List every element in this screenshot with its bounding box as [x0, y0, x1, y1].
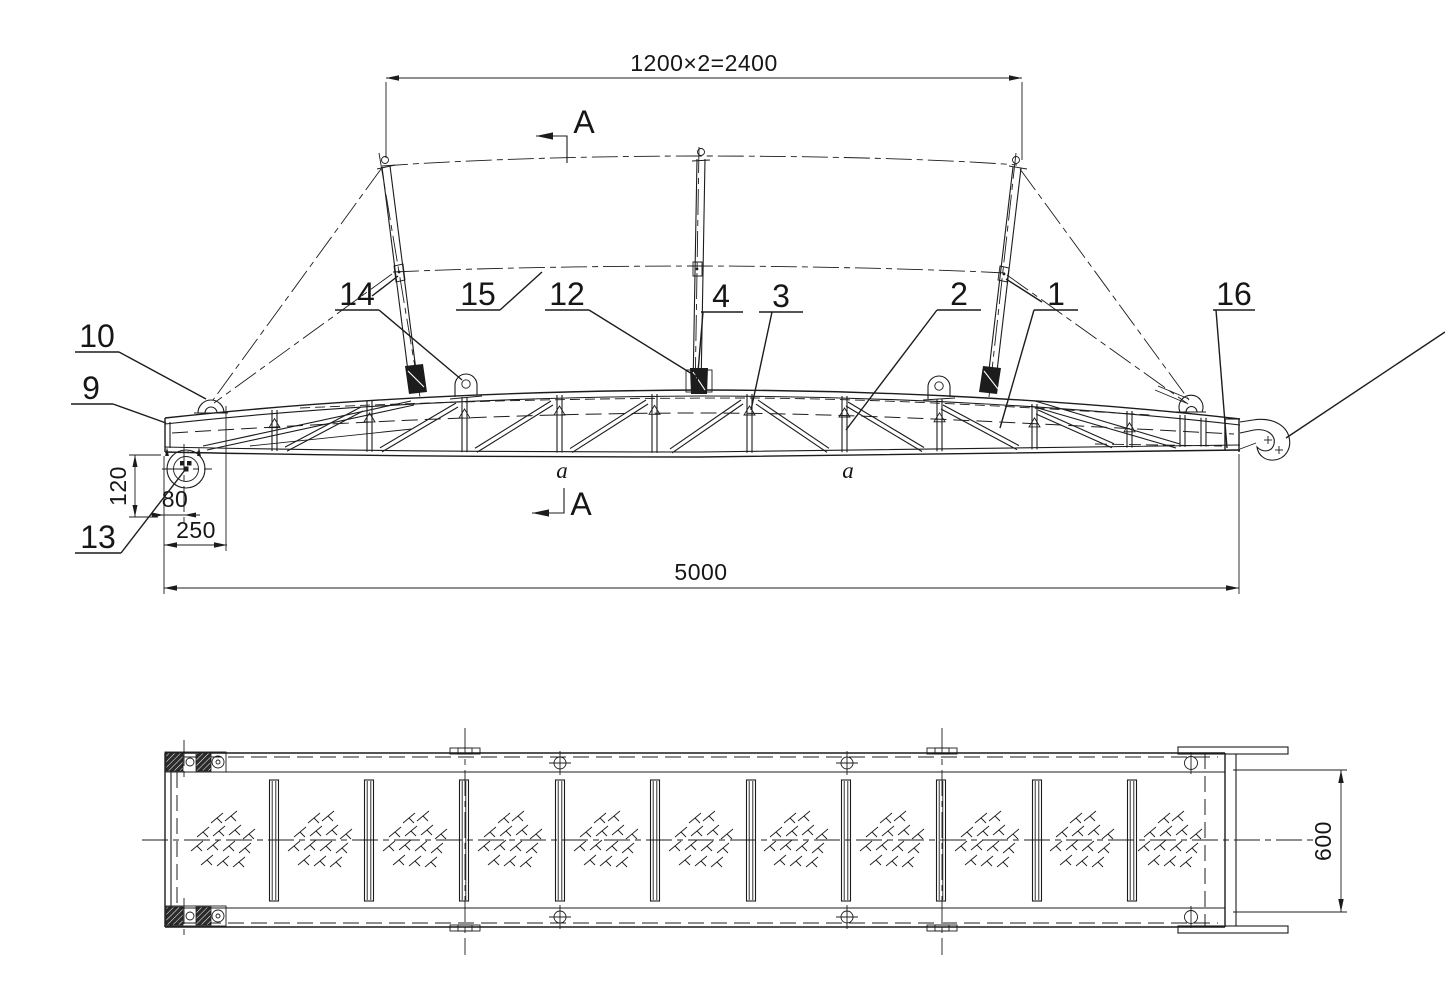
svg-text:15: 15 — [460, 276, 496, 312]
end-bolt-top — [1185, 752, 1198, 774]
stanchions — [377, 147, 1027, 398]
weld-mark-right: a — [842, 458, 854, 483]
dim-top-span: 1200×2=2400 — [630, 50, 778, 76]
plan-centerlines — [142, 728, 1318, 955]
side-dimensions: 1200×2=2400 5000 250 80 120 — [105, 50, 1239, 594]
drawing-canvas: 1200×2=2400 5000 250 80 120 A A — [0, 0, 1445, 1005]
hook-leader-line — [1286, 332, 1445, 438]
svg-text:14: 14 — [339, 276, 375, 312]
stanchion-left — [377, 153, 427, 397]
section-marker-top: A — [536, 104, 595, 163]
rope-anchor-lug-b — [923, 376, 955, 400]
svg-text:12: 12 — [549, 276, 585, 312]
part-label-15: 15 — [456, 272, 542, 312]
part-label-2: 2 — [846, 276, 981, 430]
shore-hook — [1240, 332, 1445, 460]
plan-stanchion-tabs — [450, 748, 957, 931]
truss-girder — [165, 390, 1240, 457]
svg-text:3: 3 — [772, 278, 790, 314]
side-elevation-view: 1200×2=2400 5000 250 80 120 A A — [71, 50, 1445, 594]
section-letter-bottom: A — [570, 486, 592, 522]
deck-slats-and-knurling — [191, 780, 1202, 901]
part-label-14: 14 — [335, 276, 462, 380]
roller-block-bottom — [165, 898, 226, 940]
part-label-12: 12 — [545, 276, 697, 377]
dim-width: 600 — [1310, 821, 1336, 861]
end-bolt-bottom — [1185, 906, 1198, 928]
svg-text:2: 2 — [950, 276, 968, 312]
dim-nose-length: 250 — [176, 517, 216, 543]
shackle-lug-left — [194, 400, 228, 413]
svg-text:1: 1 — [1047, 276, 1065, 312]
plan-dimension-width: 600 — [1233, 770, 1347, 912]
svg-text:10: 10 — [79, 318, 115, 354]
dimension-arrowheads — [132, 75, 1343, 912]
roller-block-top — [165, 740, 226, 782]
dim-roller-drop: 120 — [105, 466, 131, 506]
shackle-lug-right — [1176, 395, 1206, 412]
gangway-technical-drawing: 1200×2=2400 5000 250 80 120 A A — [0, 0, 1445, 1005]
dim-roller-offset: 80 — [162, 486, 189, 512]
dim-overall-length: 5000 — [674, 559, 727, 585]
plan-view: 600 — [142, 728, 1347, 955]
section-letter-top: A — [573, 104, 595, 140]
weld-mark-left: a — [556, 458, 568, 483]
section-markers: A A a a — [532, 104, 854, 522]
svg-text:13: 13 — [80, 519, 116, 555]
part-label-9: 9 — [71, 370, 166, 423]
section-marker-bottom: A — [532, 486, 592, 522]
svg-text:16: 16 — [1216, 276, 1252, 312]
svg-text:4: 4 — [712, 278, 730, 314]
svg-text:9: 9 — [82, 370, 100, 406]
